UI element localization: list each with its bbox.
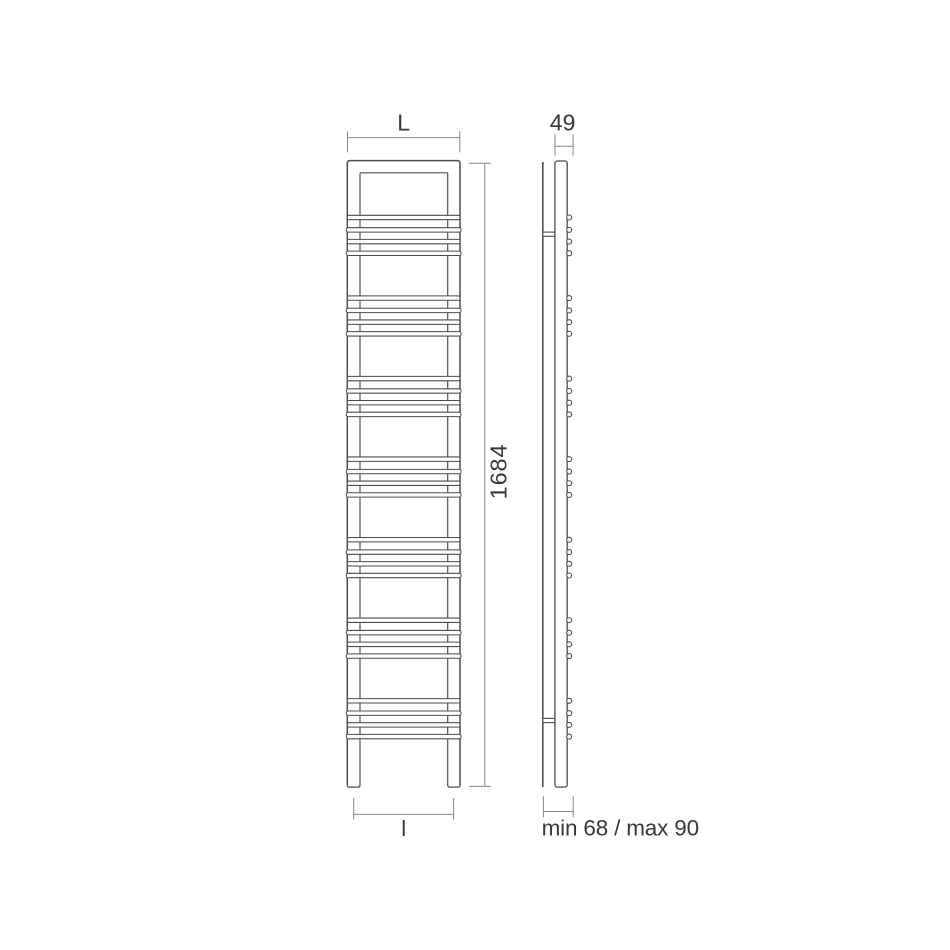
svg-text:49: 49 [550, 109, 576, 135]
svg-text:min 68 / max 90: min 68 / max 90 [542, 816, 700, 841]
svg-text:l: l [401, 816, 406, 841]
svg-text:L: L [397, 110, 410, 136]
svg-text:1684: 1684 [485, 444, 511, 499]
